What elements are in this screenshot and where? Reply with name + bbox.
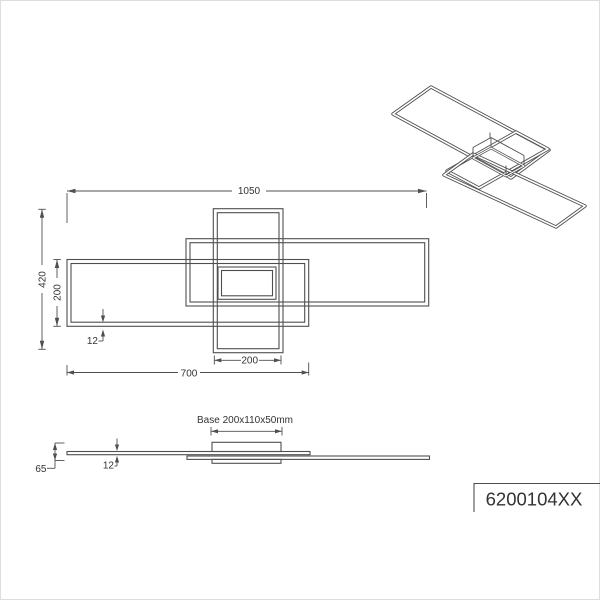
dim-base: Base 200x110x50mm [197, 415, 293, 436]
iso-frame-left-highlight [393, 87, 549, 178]
iso-view [393, 87, 585, 227]
dim-arrow [53, 443, 57, 450]
plan-base-outer [218, 267, 276, 299]
dim-arrow [67, 189, 76, 193]
iso-frame-left [393, 87, 549, 178]
dim-arrow [274, 358, 281, 362]
iso-frame-right [444, 154, 585, 227]
dim-arrow [302, 370, 309, 374]
dim-label-overall-width: 1050 [238, 186, 261, 197]
side-base-box [212, 442, 281, 451]
dim-label-overall-depth: 420 [37, 271, 48, 288]
dim-label-left-frame-width: 700 [181, 369, 198, 380]
dim-arrow [101, 316, 105, 323]
dim-arrow [55, 260, 59, 269]
dim-center-frame-width: 200 [214, 356, 281, 367]
dim-overall-width: 1050 [67, 186, 427, 223]
side-view: Base 200x110x50mm 65 12 [35, 415, 429, 475]
base-size-label: Base 200x110x50mm [197, 415, 293, 426]
plan-frame-left-inner [71, 264, 305, 323]
dim-arrow [115, 445, 119, 452]
dim-label-frame-depth: 200 [53, 284, 64, 301]
plan-frame-right-inner [190, 243, 425, 302]
dim-left-frame-width: 700 [67, 363, 309, 380]
side-profile-left [67, 452, 310, 455]
dim-arrow [418, 189, 427, 193]
iso-base-edge [491, 138, 524, 156]
dim-arrow [53, 454, 57, 461]
dim-frame-depth: 200 [53, 260, 64, 327]
dim-label-profile-width: 12 [87, 336, 99, 347]
plan-frame-center-inner [217, 213, 279, 349]
top-view: 1050 420 200 12 [37, 186, 428, 380]
dim-arrow [55, 318, 59, 327]
dim-arrow [67, 370, 74, 374]
dim-arrow [211, 429, 218, 433]
dim-overall-depth: 420 [37, 209, 48, 349]
dim-arrow [275, 429, 282, 433]
dim-total-height: 65 [35, 443, 64, 475]
plan-base-inner [222, 271, 273, 296]
side-profile-center [212, 459, 281, 463]
article-number: 6200104XX [486, 489, 583, 510]
dim-arrow [214, 358, 221, 362]
article-box: 6200104XX [474, 484, 600, 513]
dim-profile-width: 12 [87, 309, 105, 347]
dim-label-profile-height: 12 [103, 461, 115, 472]
dim-label-center-frame-width: 200 [241, 356, 258, 367]
drawing-canvas: 1050 420 200 12 [1, 1, 600, 601]
technical-drawing-sheet: 1050 420 200 12 [0, 0, 600, 600]
iso-frame-right-highlight [444, 154, 585, 227]
dim-label-total-height: 65 [35, 464, 47, 475]
dim-arrow [40, 209, 44, 218]
dim-arrow [40, 341, 44, 350]
